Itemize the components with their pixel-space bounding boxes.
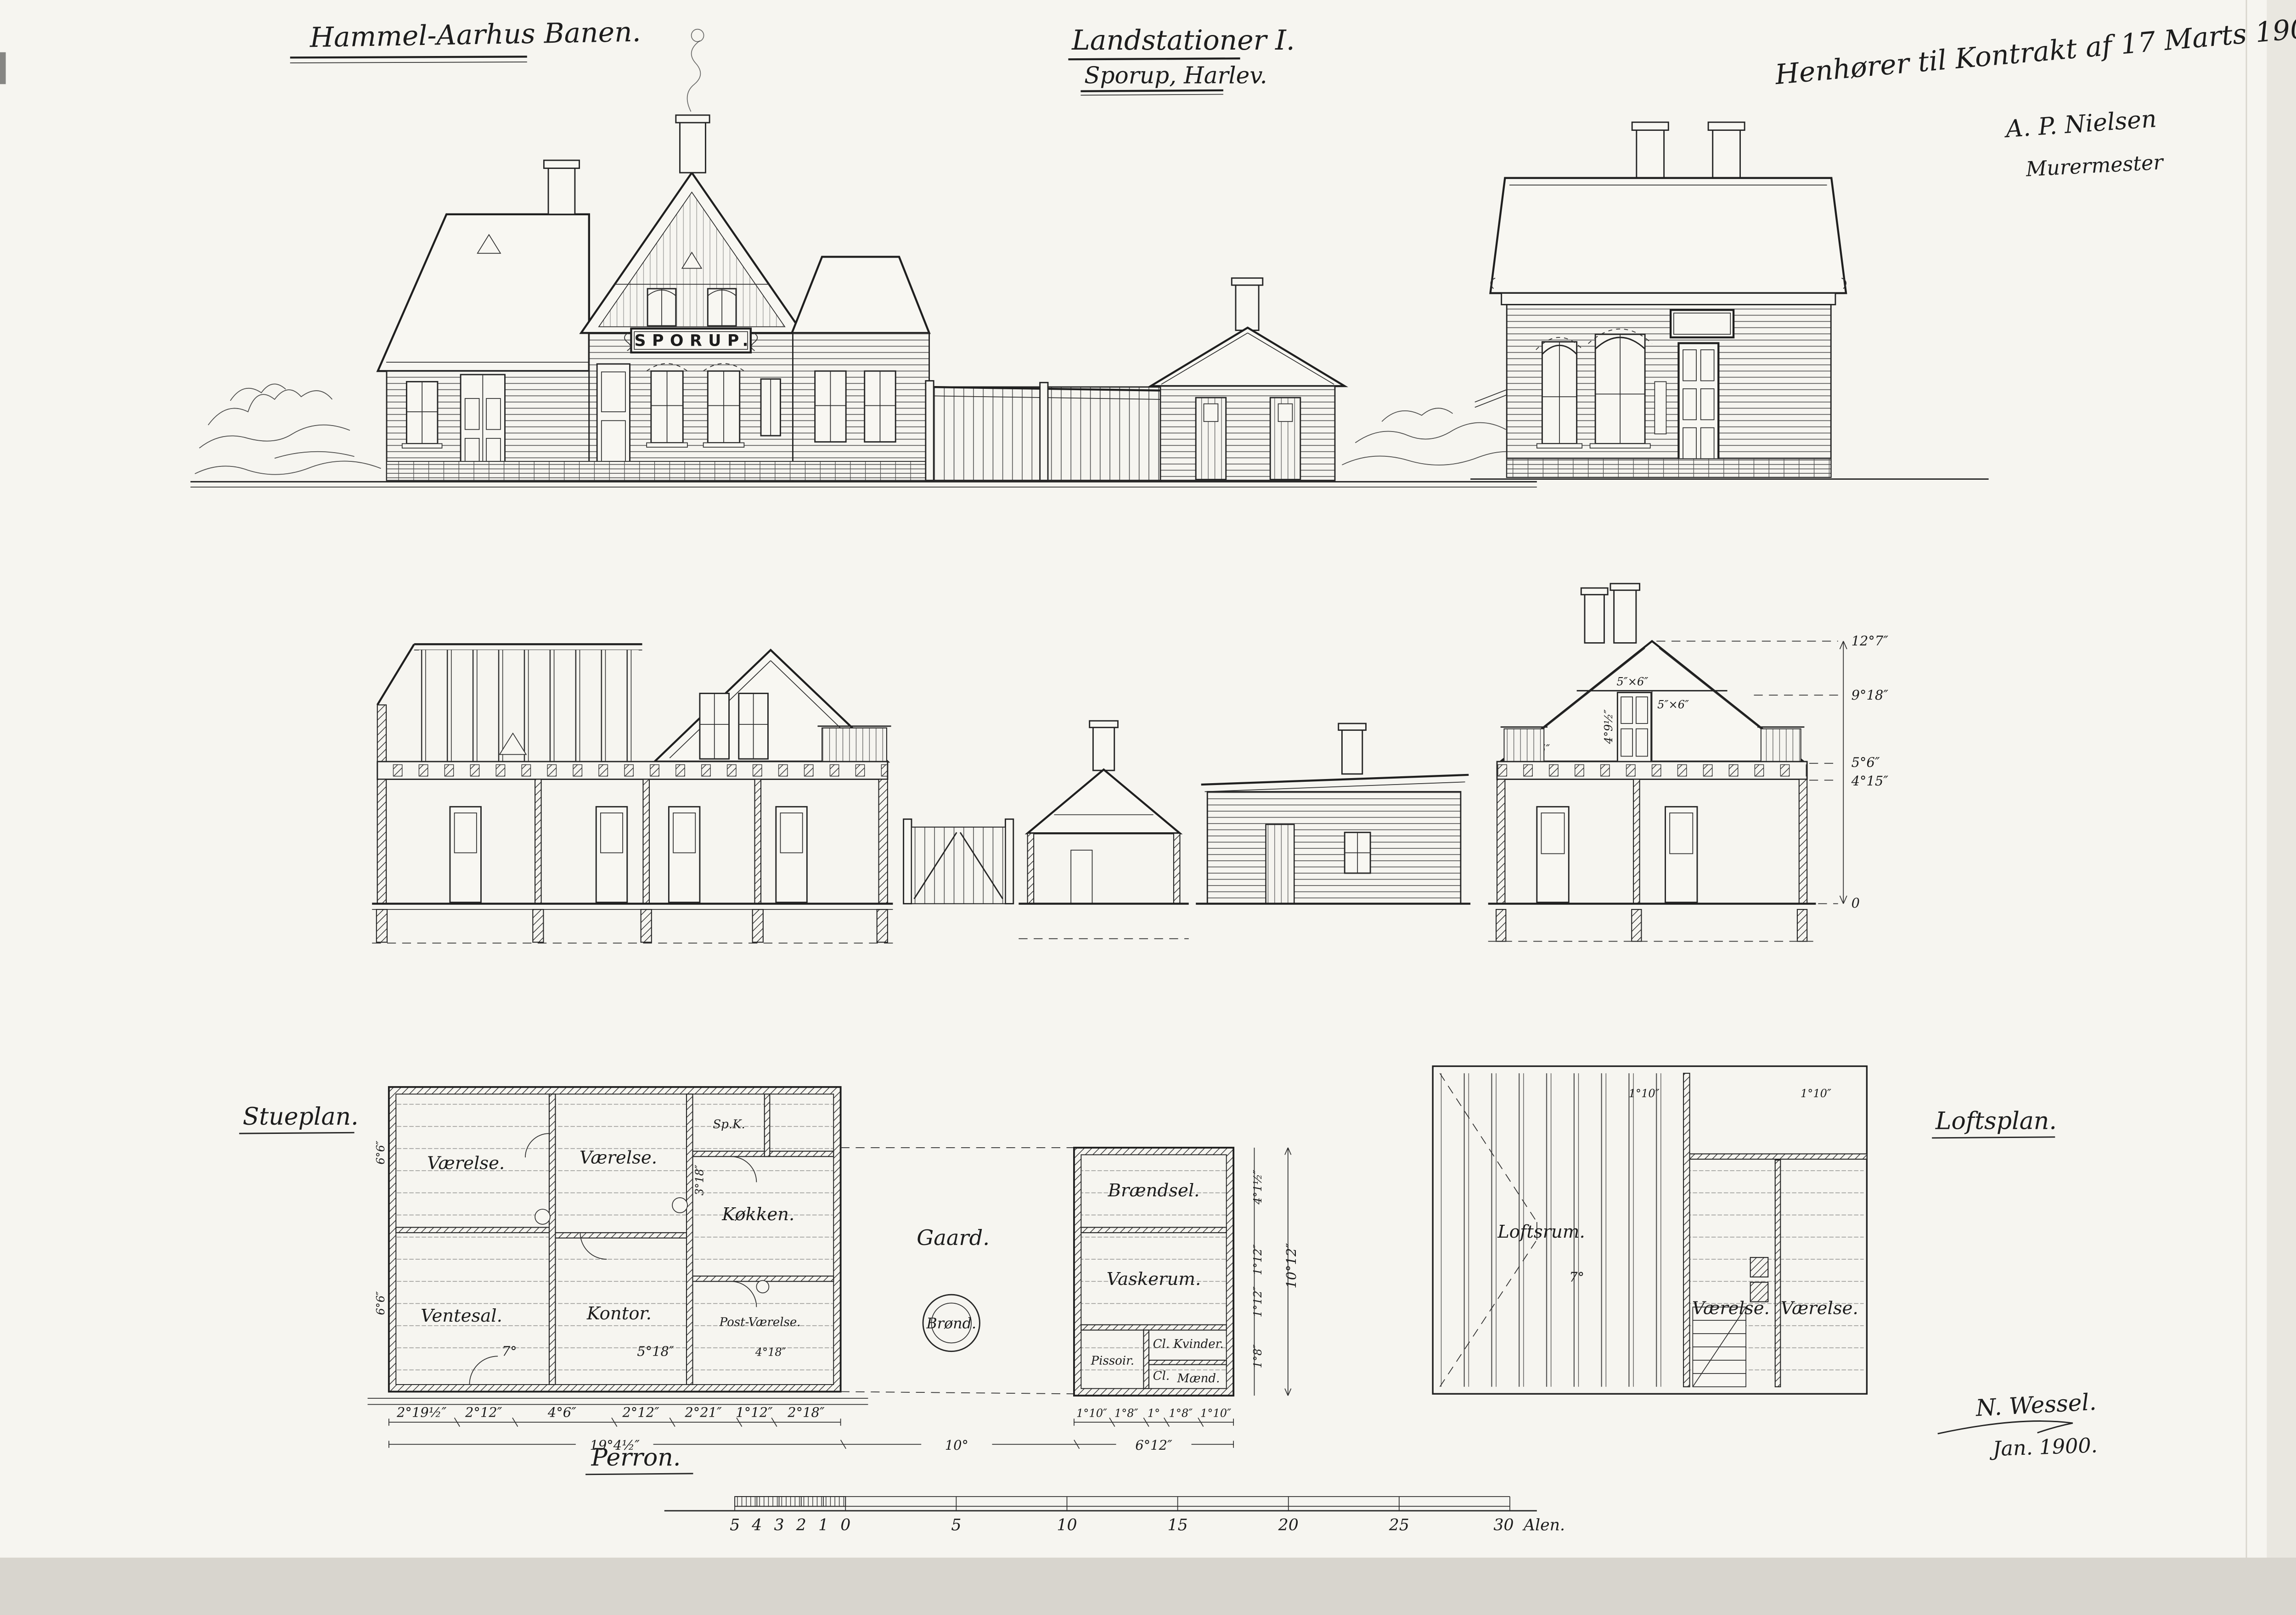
outbuilding-door — [1270, 398, 1300, 479]
dim: 2°12″ — [465, 1404, 502, 1420]
ground-plan-label: Stueplan. — [243, 1103, 359, 1131]
chimney — [680, 122, 706, 173]
room-label: Cl. — [1153, 1369, 1170, 1383]
interior-dim: 6°6″ — [374, 1291, 387, 1315]
dim: 1°8″ — [1169, 1407, 1193, 1419]
dim: 1° — [1148, 1407, 1160, 1419]
height-dim: 12°7″ — [1851, 633, 1889, 649]
architectural-drawing: Hammel-Aarhus Banen. Landstationer I. Sp… — [0, 0, 2296, 1558]
room-label: Kontor. — [586, 1303, 652, 1324]
arched-window-wide — [1588, 329, 1652, 448]
right-wing-wall — [793, 333, 929, 480]
foundation-piers — [377, 909, 888, 942]
title-block: Hammel-Aarhus Banen. Landstationer I. Sp… — [290, 11, 2296, 181]
dim: 2°21″ — [684, 1404, 722, 1420]
plinth — [387, 461, 929, 480]
scale-num: 5 — [951, 1516, 961, 1534]
smoke — [687, 41, 701, 112]
dim: 4°1½″ — [1251, 1170, 1264, 1205]
interior-dim: 6°6″ — [374, 1141, 387, 1165]
dim: 1°10″ — [1076, 1407, 1107, 1419]
attic-door — [1617, 692, 1651, 761]
height-dim: 4°15″ — [1851, 773, 1889, 789]
contractor-name: A. P. Nielsen — [2003, 105, 2157, 143]
sheet-subtitle: Sporup, Harlev. — [1084, 62, 1267, 89]
plinth — [1507, 459, 1831, 477]
interior-dim: 7° — [1569, 1269, 1584, 1285]
room-label: Køkken. — [721, 1204, 794, 1225]
dim-yard: 10° — [945, 1437, 968, 1453]
well: Brønd. — [923, 1295, 979, 1351]
arched-window — [1536, 337, 1583, 448]
chimney — [1637, 129, 1664, 179]
right-wing-roof — [792, 257, 929, 333]
dim: 2°19½″ — [396, 1404, 447, 1420]
chimney — [1713, 129, 1740, 179]
chimney — [548, 168, 575, 214]
room-label: Vaskerum. — [1107, 1269, 1201, 1290]
interior-dim: 4°18″ — [755, 1346, 786, 1358]
section-doors — [1537, 807, 1697, 902]
dim: 1°12″ — [736, 1404, 773, 1420]
longitudinal-section — [372, 644, 893, 943]
ground-floor-plan: Værelse. Værelse. Sp.K. Ventesal. Kontor… — [368, 1087, 868, 1405]
platform-label: Perron. — [591, 1444, 681, 1472]
yard-label: Gaard. — [917, 1225, 990, 1250]
room-label: Værelse. — [1781, 1298, 1858, 1319]
signature-block: N. Wessel. Jan. 1900. — [1938, 1388, 2098, 1461]
outbuilding-section — [1019, 721, 1188, 939]
railway-title: Hammel-Aarhus Banen. — [309, 17, 641, 54]
attic-height-dim: 4°9½″ — [1602, 709, 1615, 744]
well-label: Brønd. — [926, 1315, 976, 1332]
height-dim: 0 — [1851, 895, 1860, 911]
scale-num: 30 — [1493, 1516, 1514, 1534]
entrance-door — [1670, 343, 1727, 475]
interior-dim: 1°10″ — [1629, 1087, 1660, 1100]
dim: 1°8″ — [1251, 1345, 1264, 1368]
slit-window — [1654, 381, 1666, 434]
drawing-sheet: Hammel-Aarhus Banen. Landstationer I. Sp… — [0, 0, 2296, 1558]
scale-num: 20 — [1278, 1516, 1299, 1534]
sheet-title: Landstationer I. — [1071, 25, 1295, 56]
room-label: Pissoir. — [1091, 1354, 1134, 1368]
dim: 1°8″ — [1114, 1407, 1138, 1419]
scale-bar: 5 4 3 2 1 0 5 10 15 20 25 30 Alen. — [664, 1497, 1565, 1534]
loft-plan-label: Loftsplan. — [1935, 1107, 2057, 1135]
gable-block-door — [597, 364, 630, 475]
room-label: Værelse. — [1692, 1298, 1770, 1319]
dim: 1°12″ — [1251, 1245, 1264, 1275]
foundation-piers — [1496, 909, 1807, 941]
station-sign-text: SPORUP. — [635, 331, 755, 350]
fence-elevation — [926, 381, 1161, 480]
outbuilding-side-elevation — [1196, 723, 1470, 904]
room-label: Post-Værelse. — [719, 1316, 801, 1329]
outbuilding-plan: Brændsel. Vaskerum. Pissoir. Cl. Kvinder… — [1074, 1148, 1299, 1396]
architect-signature: N. Wessel. — [1975, 1388, 2097, 1422]
height-dim: 9°18″ — [1851, 687, 1889, 703]
scale-num: 4 — [751, 1516, 762, 1534]
room-label: Ventesal. — [421, 1306, 502, 1326]
scale-num: 15 — [1168, 1516, 1188, 1534]
height-dim: 5°6″ — [1851, 755, 1880, 770]
scale-num: 3 — [774, 1516, 784, 1534]
plan-dimension-chains: 2°19½″ 2°12″ 4°6″ 2°12″ 2°21″ 1°12″ 2°18… — [389, 1404, 1233, 1452]
outbuilding-window — [1345, 832, 1370, 873]
room-label: Brændsel. — [1108, 1180, 1200, 1201]
dim: 1°10″ — [1200, 1407, 1231, 1419]
interior-dim: 1°10″ — [1801, 1087, 1831, 1100]
yard-plan: Gaard. Brønd. — [841, 1148, 1074, 1394]
interior-dim: 3°18″ — [693, 1165, 706, 1195]
loft-plan: Loftsrum. Værelse. Værelse. 7° 1°10″ 1°1… — [1433, 1066, 1867, 1394]
outbuilding-door — [1196, 398, 1226, 479]
contractor-role: Murermester — [2025, 151, 2165, 181]
contract-note: Henhører til Kontrakt af 17 Marts 1900. — [1773, 11, 2296, 91]
gate-section — [904, 819, 1013, 903]
scale-num: 0 — [840, 1516, 850, 1534]
scale-unit: Alen. — [1522, 1516, 1565, 1534]
station-sign: SPORUP. — [625, 329, 757, 353]
scale-num: 1 — [818, 1516, 828, 1534]
scale-num: 25 — [1389, 1516, 1409, 1534]
room-label: Værelse. — [427, 1153, 505, 1173]
left-wing-window — [402, 381, 442, 448]
chimney — [1342, 730, 1362, 774]
room-label: Sp.K. — [713, 1118, 745, 1132]
chimney — [1236, 284, 1259, 330]
chimney — [1585, 594, 1604, 643]
timber-dim: 5″×6″ — [1616, 675, 1648, 688]
loft-stair — [1693, 1307, 1746, 1387]
room-label: Værelse. — [580, 1148, 657, 1168]
room-label: Kvinder. — [1173, 1337, 1223, 1351]
roof — [1491, 178, 1846, 293]
dim: 2°12″ — [622, 1404, 659, 1420]
cross-section-main: 5″×6″ 5″×6″ 4″×5″ 4°9½″ — [1488, 583, 1889, 941]
dim-total: 10°12″ — [1283, 1243, 1299, 1289]
station-elevation-trackside: SPORUP. — [378, 29, 929, 481]
landscape-sketch-left — [195, 384, 381, 474]
room-label: Cl. — [1153, 1337, 1170, 1351]
chimney — [1093, 727, 1114, 771]
scale-num: 2 — [796, 1516, 806, 1534]
outbuilding-right-dims: 4°1½″ 1°12″ 1°12″ 1°8″ 10°12″ — [1251, 1148, 1299, 1396]
scale-num: 5 — [730, 1516, 740, 1534]
scale-num: 10 — [1057, 1516, 1077, 1534]
interior-dim: 5°18″ — [637, 1343, 674, 1359]
outbuilding-elevation — [1151, 278, 1345, 481]
scale-ticks — [735, 1497, 1510, 1511]
signature-date: Jan. 1900. — [1989, 1434, 2098, 1461]
dim: 1°12″ — [1251, 1286, 1264, 1317]
station-elevation-gable-end — [1475, 122, 1846, 477]
dim-outbuilding: 6°12″ — [1135, 1437, 1172, 1453]
dim: 2°18″ — [787, 1404, 825, 1420]
interior-dim: 7° — [502, 1343, 517, 1359]
dim: 4°6″ — [547, 1404, 576, 1420]
section-doors — [450, 807, 807, 902]
balcony-railing — [817, 726, 891, 762]
timber-dim: 5″×6″ — [1657, 698, 1689, 711]
room-label: Loftsrum. — [1497, 1222, 1585, 1242]
room-label: Mænd. — [1177, 1372, 1220, 1385]
chimney — [1614, 590, 1636, 643]
name-board — [1671, 310, 1733, 337]
